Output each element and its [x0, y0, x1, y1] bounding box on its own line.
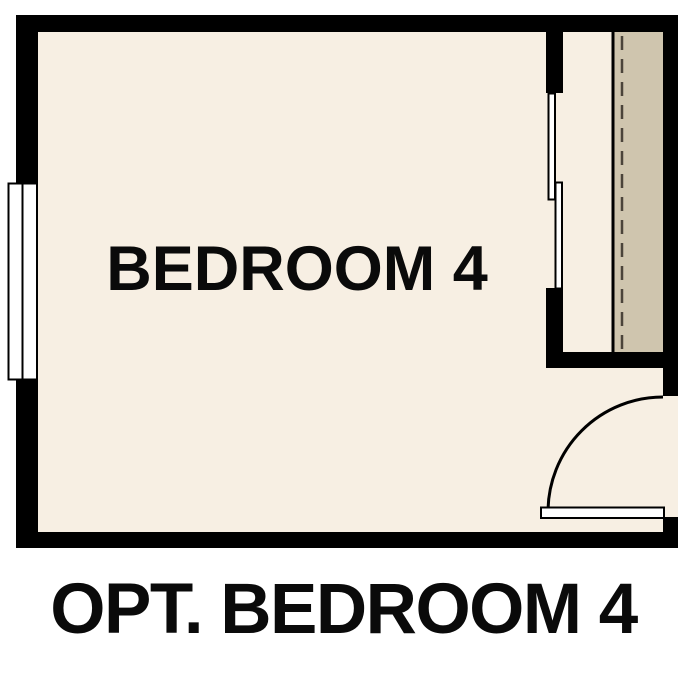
closet-shelf-edge-line	[612, 32, 615, 352]
door-leaf	[541, 508, 664, 519]
closet-bottom-wall	[546, 352, 678, 368]
floorplan-canvas: BEDROOM 4 OPT. BEDROOM 4	[0, 0, 687, 687]
door-opening	[663, 396, 678, 517]
plan-caption: OPT. BEDROOM 4	[0, 574, 687, 645]
closet-partition-upper	[546, 32, 563, 93]
room-label: BEDROOM 4	[43, 238, 551, 301]
window-inner-pane	[23, 184, 38, 380]
closet-sliding-door-right-panel	[556, 183, 563, 289]
closet-shelf	[615, 32, 664, 352]
window-outer-pane	[9, 184, 23, 380]
window	[9, 184, 38, 380]
closet-sliding-door-left-panel	[549, 94, 556, 200]
